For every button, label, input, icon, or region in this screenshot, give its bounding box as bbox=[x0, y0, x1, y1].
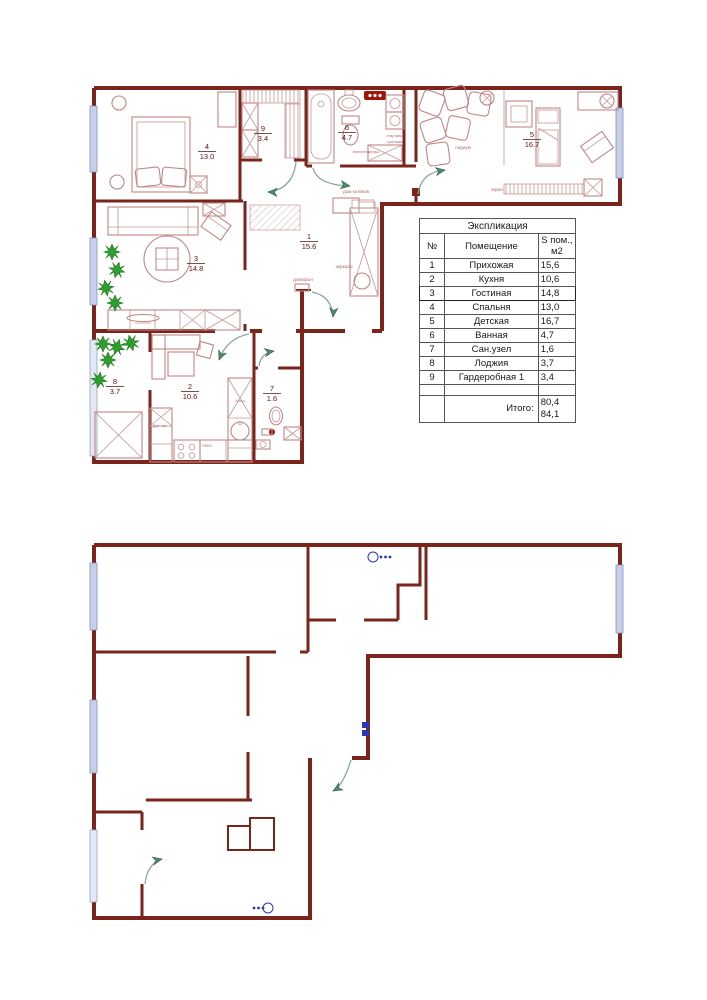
screen-label: экран bbox=[491, 187, 503, 192]
window bbox=[616, 565, 623, 633]
toilet bbox=[262, 407, 283, 435]
coat-rack bbox=[250, 205, 300, 230]
legend-row: 2 Кухня 10,6 bbox=[420, 273, 576, 287]
empty-cell bbox=[445, 385, 539, 396]
room-area: 3.7 bbox=[110, 387, 120, 396]
window bbox=[90, 700, 97, 773]
door-swing bbox=[268, 162, 296, 196]
row-area: 4,7 bbox=[538, 329, 575, 343]
total-value-alt: 84,1 bbox=[541, 409, 560, 420]
vent-shaft bbox=[250, 818, 274, 850]
room-label-wc: 7 1.6 bbox=[263, 384, 281, 403]
toilet-outlet-symbol bbox=[253, 903, 273, 913]
col-header-area-line2: м2 bbox=[551, 246, 563, 257]
row-area: 3,4 bbox=[538, 371, 575, 385]
room-area: 1.6 bbox=[267, 394, 277, 403]
shelf-unit bbox=[506, 101, 532, 127]
fridge-label: Хол-к bbox=[235, 398, 245, 403]
plumbing-electric-symbols bbox=[253, 552, 392, 913]
legend-header-row: № Помещение S пом.,м2 bbox=[420, 234, 576, 259]
oven-column bbox=[150, 408, 172, 462]
row-area: 3,7 bbox=[538, 357, 575, 371]
loggia-glazing bbox=[90, 340, 97, 456]
towel-warmer bbox=[364, 91, 386, 100]
storage-box bbox=[95, 412, 142, 458]
coffee-table bbox=[156, 248, 178, 270]
cooktop bbox=[174, 440, 200, 462]
cat-house-label: дом котиков bbox=[343, 189, 369, 194]
mirror-label: зеркало bbox=[335, 264, 353, 269]
room-number: 6 bbox=[345, 123, 349, 132]
child-bed bbox=[536, 108, 560, 166]
room-number: 8 bbox=[113, 377, 117, 386]
door-swing bbox=[313, 168, 351, 190]
towel-dryer-label: полотенцесуш. bbox=[352, 149, 379, 154]
wardrobe-shelving bbox=[242, 90, 300, 158]
door-swing bbox=[331, 760, 351, 794]
door-swing bbox=[215, 334, 249, 361]
door-swings bbox=[215, 162, 445, 366]
room-area: 10.6 bbox=[183, 392, 198, 401]
dresser bbox=[218, 92, 236, 127]
shelf-box bbox=[284, 427, 301, 440]
room-area: 15.6 bbox=[302, 242, 317, 251]
row-name: Детская bbox=[445, 315, 539, 329]
plant-pot bbox=[600, 94, 614, 108]
plan-original-windows bbox=[90, 563, 623, 902]
pillow bbox=[135, 167, 161, 187]
floor-lamp bbox=[112, 96, 126, 110]
tv bbox=[127, 315, 159, 322]
row-num: 6 bbox=[420, 329, 445, 343]
room-number: 9 bbox=[261, 124, 265, 133]
window bbox=[90, 106, 97, 172]
mirror-wardrobe bbox=[350, 200, 378, 296]
boiler bbox=[256, 440, 270, 449]
dishwasher-label: ПММ bbox=[202, 443, 211, 448]
col-header-area: S пом.,м2 bbox=[538, 234, 575, 259]
room-number: 4 bbox=[205, 142, 209, 151]
window bbox=[616, 108, 623, 178]
floor-plan-drawing: 1 15.6 2 10.6 3 14.8 4 13.0 5 bbox=[0, 0, 707, 1000]
legend-title: Экспликация bbox=[420, 219, 576, 234]
oven-label: Дух. шк. bbox=[153, 423, 168, 428]
chair bbox=[196, 341, 213, 358]
col-header-num: № bbox=[420, 234, 445, 259]
row-name: Кухня bbox=[445, 273, 539, 287]
door-swing bbox=[259, 347, 275, 366]
col-header-area-line1: S пом., bbox=[541, 235, 572, 246]
legend-title-row: Экспликация bbox=[420, 219, 576, 234]
door-swing bbox=[418, 166, 446, 194]
row-name: Гардеробная 1 bbox=[445, 371, 539, 385]
legend-row: 6 Ванная 4,7 bbox=[420, 329, 576, 343]
childrens-room-furniture bbox=[418, 85, 618, 196]
row-num: 3 bbox=[420, 287, 445, 301]
loggia-glazing bbox=[90, 830, 97, 902]
room-number: 1 bbox=[307, 232, 311, 241]
living-room-furniture bbox=[97, 203, 240, 330]
tv-console bbox=[108, 310, 240, 330]
total-label: Итого: bbox=[445, 396, 539, 423]
room-label-bedroom: 4 13.0 bbox=[198, 142, 216, 161]
dryer-label: суш.маш bbox=[387, 139, 403, 144]
row-area: 10,6 bbox=[538, 273, 575, 287]
intercom-label: домофон bbox=[293, 277, 313, 282]
legend-row: 7 Сан.узел 1,6 bbox=[420, 343, 576, 357]
plan-original-walls bbox=[94, 545, 620, 918]
storage-box bbox=[584, 179, 602, 196]
washer-label: стир.маш bbox=[386, 133, 403, 138]
room-area: 3.4 bbox=[258, 134, 268, 143]
empty-cell bbox=[420, 396, 445, 423]
room-number: 7 bbox=[270, 384, 274, 393]
room-number: 5 bbox=[530, 130, 534, 139]
pillow bbox=[161, 167, 186, 187]
plan-original bbox=[90, 545, 623, 918]
row-num: 5 bbox=[420, 315, 445, 329]
fridge-sink-column bbox=[228, 378, 252, 462]
kitchen-table bbox=[168, 352, 194, 376]
row-name: Прихожая bbox=[445, 259, 539, 273]
row-area: 16,7 bbox=[538, 315, 575, 329]
row-num: 9 bbox=[420, 371, 445, 385]
room-area: 14.8 bbox=[189, 264, 204, 273]
row-area: 13,0 bbox=[538, 301, 575, 315]
window bbox=[90, 238, 97, 305]
row-area: 14,8 bbox=[538, 287, 575, 301]
row-area: 15,6 bbox=[538, 259, 575, 273]
door-swing bbox=[312, 292, 338, 317]
row-name: Гостиная bbox=[445, 287, 539, 301]
washer-dryer-stack bbox=[386, 95, 404, 129]
row-num: 1 bbox=[420, 259, 445, 273]
sofa bbox=[108, 207, 198, 235]
legend-row: 5 Детская 16,7 bbox=[420, 315, 576, 329]
plant-pot bbox=[480, 91, 494, 105]
vent-shaft bbox=[228, 826, 250, 850]
row-num: 2 bbox=[420, 273, 445, 287]
row-area: 1,6 bbox=[538, 343, 575, 357]
door-swing bbox=[145, 855, 163, 884]
room-number: 2 bbox=[188, 382, 192, 391]
plant-box bbox=[190, 176, 207, 193]
room-label-loggia: 8 3.7 bbox=[106, 377, 124, 396]
room-label-hall: 1 15.6 bbox=[300, 232, 318, 251]
row-name: Лоджия bbox=[445, 357, 539, 371]
desk bbox=[578, 92, 618, 110]
legend-row: 1 Прихожая 15,6 bbox=[420, 259, 576, 273]
plants bbox=[97, 244, 127, 311]
wc-fixtures bbox=[256, 407, 301, 449]
empty-cell bbox=[420, 385, 445, 396]
armchair bbox=[581, 131, 614, 162]
row-num: 7 bbox=[420, 343, 445, 357]
total-value-main: 80,4 bbox=[541, 397, 560, 408]
legend-row: 4 Спальня 13,0 bbox=[420, 301, 576, 315]
room-number: 3 bbox=[194, 254, 198, 263]
legend-row: 8 Лоджия 3,7 bbox=[420, 357, 576, 371]
kitchen-bench bbox=[152, 335, 200, 349]
room-label-kitchen: 2 10.6 bbox=[181, 382, 199, 401]
col-header-room: Помещение bbox=[445, 234, 539, 259]
row-name: Сан.узел bbox=[445, 343, 539, 357]
total-values: 80,484,1 bbox=[538, 396, 575, 423]
row-name: Ванная bbox=[445, 329, 539, 343]
legend-row-highlighted: 3 Гостиная 14,8 bbox=[420, 287, 576, 301]
empty-cell bbox=[538, 385, 575, 396]
room-label-wardrobe: 9 3.4 bbox=[254, 124, 272, 143]
row-num: 4 bbox=[420, 301, 445, 315]
room-area: 4.7 bbox=[342, 133, 352, 142]
washbasin bbox=[338, 95, 360, 111]
row-name: Спальня bbox=[445, 301, 539, 315]
floor-pillows bbox=[418, 85, 492, 167]
podium-label: подиум bbox=[455, 145, 471, 150]
radiator-screen bbox=[504, 184, 584, 194]
bedroom-furniture bbox=[110, 92, 236, 193]
room-area: 16.7 bbox=[525, 140, 540, 149]
legend-table: Экспликация № Помещение S пом.,м2 1 Прих… bbox=[419, 218, 576, 423]
room-area: 13.0 bbox=[200, 152, 215, 161]
legend-spacer-row bbox=[420, 385, 576, 396]
nightstand bbox=[110, 175, 124, 189]
legend-row: 9 Гардеробная 1 3,4 bbox=[420, 371, 576, 385]
ceiling-lamp-symbol bbox=[368, 552, 391, 562]
row-num: 8 bbox=[420, 357, 445, 371]
legend-total-row: Итого: 80,484,1 bbox=[420, 396, 576, 423]
window bbox=[90, 563, 97, 630]
